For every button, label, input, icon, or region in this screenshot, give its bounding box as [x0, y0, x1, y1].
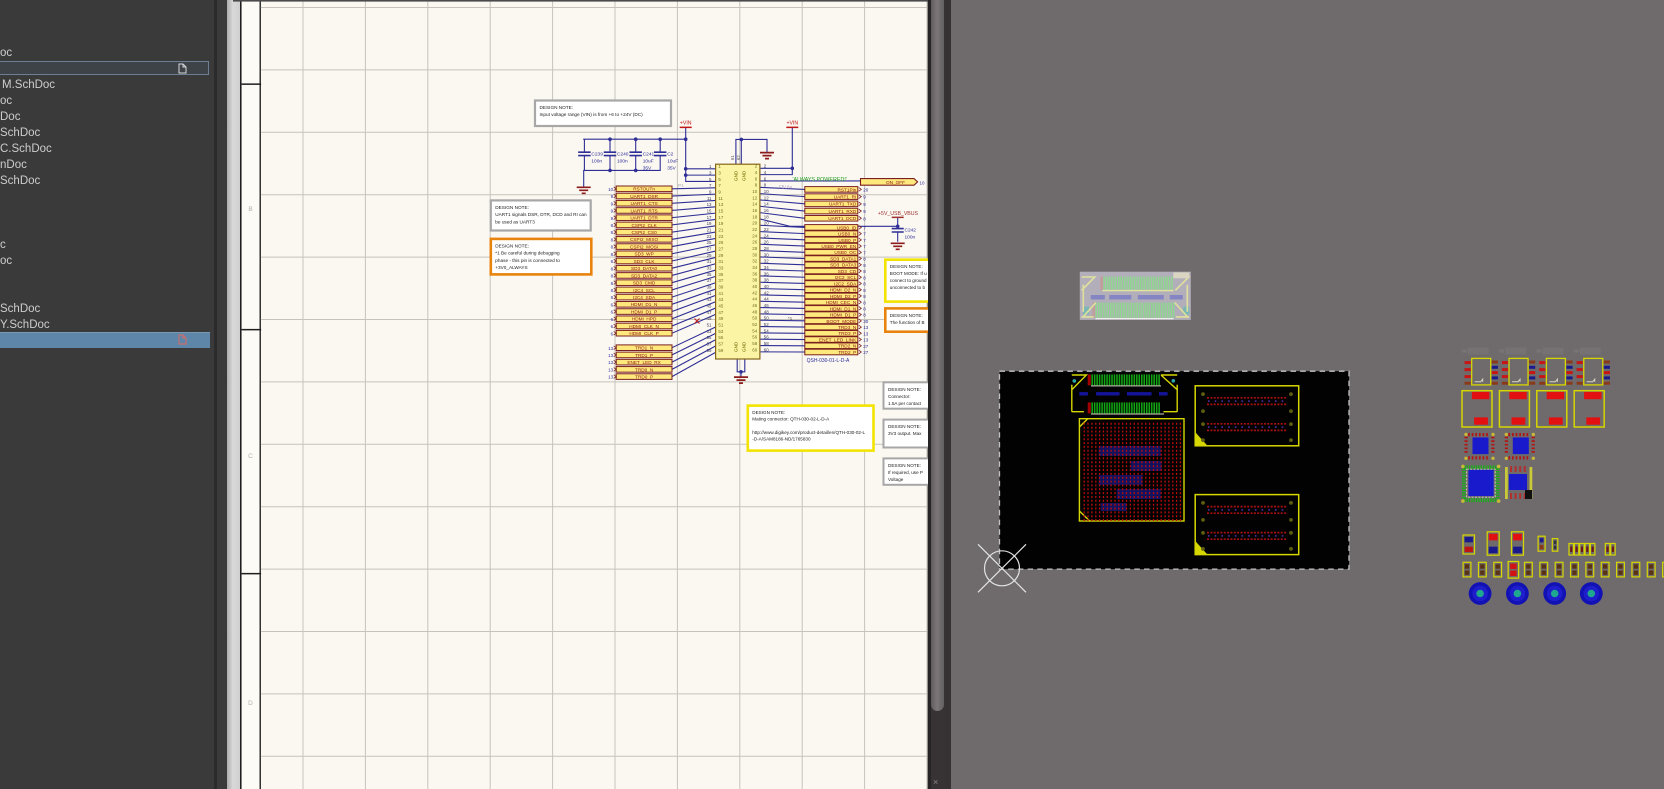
- svg-text:35: 35: [707, 272, 712, 277]
- svg-text:GND: GND: [734, 170, 739, 181]
- svg-text:58: 58: [764, 341, 769, 346]
- svg-text:I2C4_SDA: I2C4_SDA: [633, 295, 656, 300]
- svg-text:44: 44: [764, 297, 769, 302]
- svg-text:13: 13: [863, 325, 869, 330]
- svg-text:DESIGN NOTE:: DESIGN NOTE:: [888, 463, 921, 468]
- svg-text:10: 10: [752, 189, 757, 194]
- svg-text:P1: P1: [678, 183, 684, 188]
- svg-text:I2C2_SCL: I2C2_SCL: [835, 275, 857, 280]
- svg-text:34: 34: [752, 265, 757, 270]
- svg-text:UART1_DCD: UART1_DCD: [828, 216, 857, 221]
- svg-text:13: 13: [718, 202, 723, 207]
- svg-text:35V: 35V: [667, 166, 676, 172]
- svg-text:QSH-030-01-L-D-A: QSH-030-01-L-D-A: [807, 358, 850, 364]
- svg-text:24: 24: [764, 233, 769, 238]
- svg-text:UART1_RXD: UART1_RXD: [829, 209, 857, 214]
- svg-text:ENET_LED_LINK: ENET_LED_LINK: [819, 337, 857, 342]
- svg-text:51: 51: [707, 322, 712, 327]
- svg-text:48: 48: [764, 309, 769, 314]
- svg-text:46: 46: [764, 303, 769, 308]
- svg-text:14: 14: [752, 202, 757, 207]
- svg-text:46: 46: [752, 303, 757, 308]
- svg-text:60: 60: [764, 347, 769, 352]
- svg-text:27: 27: [707, 247, 712, 252]
- svg-text:DESIGN NOTE:: DESIGN NOTE:: [495, 243, 529, 248]
- svg-text:50: 50: [752, 316, 757, 321]
- svg-text:16: 16: [764, 208, 769, 213]
- svg-text:http://www.digikey.com/product: http://www.digikey.com/product-detail/en…: [752, 430, 865, 435]
- svg-text:TRD0_N: TRD0_N: [635, 367, 653, 372]
- svg-text:FB18a: FB18a: [779, 185, 792, 190]
- svg-text:+VIN: +VIN: [680, 121, 692, 127]
- svg-text:*1 Be careful during debugging: *1 Be careful during debugging: [495, 251, 560, 256]
- svg-text:12: 12: [752, 195, 757, 200]
- svg-text:HDMI_D2_N: HDMI_D2_N: [830, 288, 857, 293]
- svg-text:DESIGN NOTE:: DESIGN NOTE:: [540, 105, 574, 110]
- svg-text:RST1Pin: RST1Pin: [838, 187, 857, 192]
- svg-text:SD3_DATA0: SD3_DATA0: [631, 266, 658, 271]
- svg-text:42: 42: [764, 290, 769, 295]
- svg-text:21: 21: [707, 228, 712, 233]
- svg-text:13: 13: [608, 353, 614, 358]
- svg-text:C242: C242: [905, 228, 917, 234]
- svg-text:RSTOUTn: RSTOUTn: [633, 187, 655, 192]
- svg-text:41: 41: [707, 291, 712, 296]
- svg-text:44: 44: [752, 297, 757, 302]
- svg-text:55: 55: [707, 335, 712, 340]
- svg-text:28: 28: [752, 246, 757, 251]
- svg-text:45: 45: [707, 304, 712, 309]
- svg-text:33: 33: [707, 266, 712, 271]
- svg-text:If required, use P: If required, use P: [888, 470, 923, 475]
- svg-text:23: 23: [718, 234, 723, 239]
- svg-text:27: 27: [863, 350, 869, 355]
- svg-text:27: 27: [863, 344, 869, 349]
- svg-text:TRD3_N: TRD3_N: [838, 325, 856, 330]
- svg-text:TRD1_P: TRD1_P: [635, 353, 653, 358]
- svg-text:56: 56: [764, 335, 769, 340]
- svg-text:ON_OFF: ON_OFF: [886, 180, 905, 185]
- svg-text:BOOT MODE: If u: BOOT MODE: If u: [890, 271, 927, 276]
- svg-text:HDMI_D1_N: HDMI_D1_N: [830, 306, 857, 311]
- svg-text:connect to ground: connect to ground: [890, 278, 927, 283]
- svg-text:'ALWAYS POWERED!': 'ALWAYS POWERED!': [793, 177, 847, 183]
- svg-text:18: 18: [752, 214, 757, 219]
- svg-text:UART1 signals DSR, DTR, DCD an: UART1 signals DSR, DTR, DCD and RI can: [495, 212, 587, 217]
- svg-text:43: 43: [718, 297, 723, 302]
- svg-text:SD3_DATA1: SD3_DATA1: [830, 256, 857, 261]
- svg-text:I2C2_SDA: I2C2_SDA: [834, 281, 857, 286]
- svg-text:13: 13: [863, 331, 869, 336]
- svg-text:39: 39: [718, 285, 723, 290]
- svg-text:HDMI_D2_P: HDMI_D2_P: [830, 294, 856, 299]
- svg-text:60: 60: [752, 347, 757, 352]
- svg-text:GND: GND: [742, 341, 747, 352]
- svg-text:unconnected to b: unconnected to b: [890, 285, 926, 290]
- svg-text:57: 57: [718, 341, 723, 346]
- svg-text:31: 31: [707, 259, 712, 264]
- svg-text:BOOT_MODE: BOOT_MODE: [826, 319, 856, 324]
- svg-text:UART1_RTS: UART1_RTS: [631, 208, 658, 213]
- svg-text:HDMI_CLK_P: HDMI_CLK_P: [629, 331, 658, 336]
- svg-text:phase - this pin is connected: phase - this pin is connected to: [495, 258, 560, 263]
- svg-text:39: 39: [707, 285, 712, 290]
- svg-text:62: 62: [736, 155, 741, 160]
- svg-text:32: 32: [752, 259, 757, 264]
- svg-text:37: 37: [707, 278, 712, 283]
- svg-text:26: 26: [764, 240, 769, 245]
- svg-text:36: 36: [764, 271, 769, 276]
- svg-text:13: 13: [707, 202, 712, 207]
- svg-text:C2: C2: [667, 152, 673, 158]
- svg-text:25: 25: [718, 240, 723, 245]
- svg-text:38: 38: [752, 278, 757, 283]
- svg-text:DESIGN NOTE:: DESIGN NOTE:: [888, 424, 921, 429]
- svg-text:C: C: [248, 453, 253, 460]
- svg-text:TRD2_N: TRD2_N: [838, 344, 856, 349]
- svg-text:20: 20: [752, 221, 757, 226]
- svg-text:53: 53: [718, 329, 723, 334]
- svg-text:30: 30: [752, 252, 757, 257]
- svg-text:45: 45: [718, 304, 723, 309]
- svg-text:27: 27: [718, 247, 723, 252]
- svg-text:100n: 100n: [591, 159, 602, 165]
- svg-text:SD3_CD: SD3_CD: [838, 269, 857, 274]
- svg-text:15: 15: [718, 209, 723, 214]
- svg-text:DESIGN NOTE:: DESIGN NOTE:: [890, 313, 923, 318]
- svg-text:D: D: [248, 700, 253, 707]
- svg-text:23: 23: [707, 234, 712, 239]
- svg-text:40: 40: [752, 284, 757, 289]
- svg-text:SD3_CMD: SD3_CMD: [633, 281, 656, 286]
- svg-text:The function of B: The function of B: [890, 320, 925, 325]
- svg-text:I2C4_SCL: I2C4_SCL: [633, 288, 655, 293]
- svg-text:DESIGN NOTE:: DESIGN NOTE:: [752, 410, 785, 415]
- svg-text:17: 17: [707, 215, 712, 220]
- svg-text:HDMI_CEC_N: HDMI_CEC_N: [826, 300, 856, 305]
- svg-text:19: 19: [707, 221, 712, 226]
- svg-text:28: 28: [764, 246, 769, 251]
- svg-text:GND: GND: [734, 341, 739, 352]
- svg-text:GND: GND: [742, 170, 747, 181]
- svg-text:20: 20: [863, 188, 869, 193]
- svg-text:Input voltage range (VIN) is: Input voltage range (VIN) is from +6 to …: [540, 112, 644, 117]
- svg-text:35: 35: [718, 272, 723, 277]
- svg-text:CSPI2_CS0: CSPI2_CS0: [631, 230, 657, 235]
- svg-text:Mating connector: QTH-030-02-L: Mating connector: QTH-030-02-L-D-A: [752, 417, 830, 422]
- svg-text:HDMI_D1_P: HDMI_D1_P: [631, 309, 657, 314]
- svg-text:DESIGN NOTE:: DESIGN NOTE:: [890, 264, 923, 269]
- svg-text:41: 41: [718, 291, 723, 296]
- svg-text:40: 40: [764, 284, 769, 289]
- svg-text:59: 59: [718, 348, 723, 353]
- svg-text:13: 13: [608, 346, 614, 351]
- svg-text:16: 16: [752, 208, 757, 213]
- svg-text:SD3_DATA3: SD3_DATA3: [830, 263, 857, 268]
- svg-text:10: 10: [764, 189, 769, 194]
- svg-text:100n: 100n: [905, 235, 916, 241]
- svg-text:13: 13: [608, 360, 614, 365]
- svg-text:HDMI_D1_P: HDMI_D1_P: [830, 313, 856, 318]
- svg-text:52: 52: [752, 322, 757, 327]
- svg-text:Connector:: Connector:: [888, 394, 910, 399]
- svg-text:+VIN: +VIN: [786, 121, 798, 127]
- svg-text:47: 47: [718, 310, 723, 315]
- svg-text:54: 54: [752, 328, 757, 333]
- svg-text:+5V_USB_VBUS: +5V_USB_VBUS: [878, 211, 918, 217]
- svg-text:C240: C240: [617, 152, 629, 158]
- svg-text:10: 10: [608, 187, 614, 192]
- svg-text:51: 51: [718, 322, 723, 327]
- svg-text:18: 18: [764, 214, 769, 219]
- svg-text:30: 30: [764, 252, 769, 257]
- svg-text:47: 47: [707, 310, 712, 315]
- svg-text:USB0_N: USB0_N: [838, 232, 856, 237]
- svg-text:SD3_DATA2: SD3_DATA2: [631, 273, 658, 278]
- svg-text:UART1_DSR: UART1_DSR: [630, 194, 658, 199]
- svg-text:22: 22: [752, 227, 757, 232]
- svg-text:48: 48: [752, 309, 757, 314]
- svg-text:TRD1_N: TRD1_N: [635, 346, 653, 351]
- svg-text:C239: C239: [591, 152, 603, 158]
- svg-text:CSPI2_MOSI: CSPI2_MOSI: [630, 244, 658, 249]
- svg-text:11: 11: [707, 196, 712, 201]
- svg-text:TRD2_P: TRD2_P: [838, 350, 856, 355]
- svg-text:USB0_P: USB0_P: [838, 238, 856, 243]
- svg-text:C241: C241: [643, 152, 655, 158]
- svg-text:37: 37: [718, 278, 723, 283]
- svg-text:TRD0_P: TRD0_P: [635, 374, 653, 379]
- svg-text:30: 30: [863, 319, 869, 324]
- svg-text:35V: 35V: [643, 166, 652, 172]
- svg-text:19: 19: [718, 221, 723, 226]
- svg-text:13: 13: [608, 375, 614, 380]
- svg-text:20: 20: [764, 221, 769, 226]
- svg-text:21: 21: [718, 228, 723, 233]
- svg-text:SD3_CLK: SD3_CLK: [634, 259, 656, 264]
- svg-text:15: 15: [707, 209, 712, 214]
- svg-text:61: 61: [730, 155, 735, 160]
- svg-text:56: 56: [752, 335, 757, 340]
- svg-text:UART1_TXD: UART1_TXD: [829, 202, 857, 207]
- svg-text:ENET_LED_RX: ENET_LED_RX: [627, 360, 661, 365]
- svg-text:10: 10: [920, 180, 926, 185]
- svg-text:13: 13: [608, 367, 614, 372]
- svg-text:43: 43: [707, 297, 712, 302]
- svg-text:be used as UART3: be used as UART3: [495, 219, 535, 224]
- svg-text:49: 49: [707, 316, 712, 321]
- svg-text:11: 11: [718, 196, 723, 201]
- svg-text:-D-A/SAM8186-ND/1765830: -D-A/SAM8186-ND/1765830: [752, 437, 811, 442]
- svg-text:USB0_PWR_EN: USB0_PWR_EN: [821, 244, 856, 249]
- svg-text:12: 12: [764, 195, 769, 200]
- svg-text:UART1_CTS: UART1_CTS: [630, 201, 657, 206]
- svg-text:29: 29: [707, 253, 712, 258]
- svg-text:24: 24: [752, 233, 757, 238]
- svg-text:31: 31: [718, 259, 723, 264]
- svg-text:DESIGN NOTE:: DESIGN NOTE:: [888, 387, 921, 392]
- svg-text:57: 57: [707, 341, 712, 346]
- svg-text:DESIGN NOTE:: DESIGN NOTE:: [495, 205, 529, 210]
- svg-text:52: 52: [764, 322, 769, 327]
- svg-text:17: 17: [718, 215, 723, 220]
- svg-text:53: 53: [707, 329, 712, 334]
- svg-text:13: 13: [863, 338, 869, 343]
- svg-text:29: 29: [718, 253, 723, 258]
- svg-text:USB0_ID: USB0_ID: [837, 225, 857, 230]
- svg-text:Voltage: Voltage: [888, 477, 904, 482]
- svg-text:10uF: 10uF: [667, 159, 678, 165]
- svg-text:26: 26: [752, 240, 757, 245]
- svg-text:+3V0_ALWAYS: +3V0_ALWAYS: [495, 265, 527, 270]
- svg-text:25: 25: [707, 240, 712, 245]
- svg-text:CSPI2_CLK: CSPI2_CLK: [631, 223, 657, 228]
- svg-text:USB0_OC: USB0_OC: [834, 250, 856, 255]
- svg-text:UART1_DTR: UART1_DTR: [630, 216, 658, 221]
- svg-text:HDMI_HPD: HDMI_HPD: [632, 317, 657, 322]
- svg-text:10uF: 10uF: [643, 159, 654, 165]
- svg-text:1.5A per contact: 1.5A per contact: [888, 401, 922, 406]
- svg-text:32: 32: [764, 259, 769, 264]
- svg-text:3V3 output. Max: 3V3 output. Max: [888, 431, 922, 436]
- svg-text:22: 22: [764, 227, 769, 232]
- svg-text:49: 49: [718, 316, 723, 321]
- svg-text:B: B: [248, 206, 252, 213]
- svg-text:*1: *1: [788, 316, 793, 321]
- svg-text:SD3_WP: SD3_WP: [634, 252, 653, 257]
- svg-text:59: 59: [707, 348, 712, 353]
- svg-text:54: 54: [764, 328, 769, 333]
- svg-text:TRD3_P: TRD3_P: [838, 331, 856, 336]
- svg-text:UART1_RI: UART1_RI: [834, 195, 857, 200]
- svg-text:36: 36: [752, 271, 757, 276]
- svg-text:CSPI2_MISO: CSPI2_MISO: [630, 237, 658, 242]
- svg-text:HDMI_CLK_N: HDMI_CLK_N: [629, 324, 659, 329]
- svg-text:55: 55: [718, 335, 723, 340]
- svg-text:58: 58: [752, 341, 757, 346]
- svg-text:14: 14: [764, 202, 769, 207]
- svg-text:100n: 100n: [617, 159, 628, 165]
- svg-text:34: 34: [764, 265, 769, 270]
- svg-text:HDMI_D1_N: HDMI_D1_N: [631, 302, 658, 307]
- svg-text:42: 42: [752, 290, 757, 295]
- svg-text:50: 50: [764, 316, 769, 321]
- svg-text:38: 38: [764, 278, 769, 283]
- svg-text:33: 33: [718, 266, 723, 271]
